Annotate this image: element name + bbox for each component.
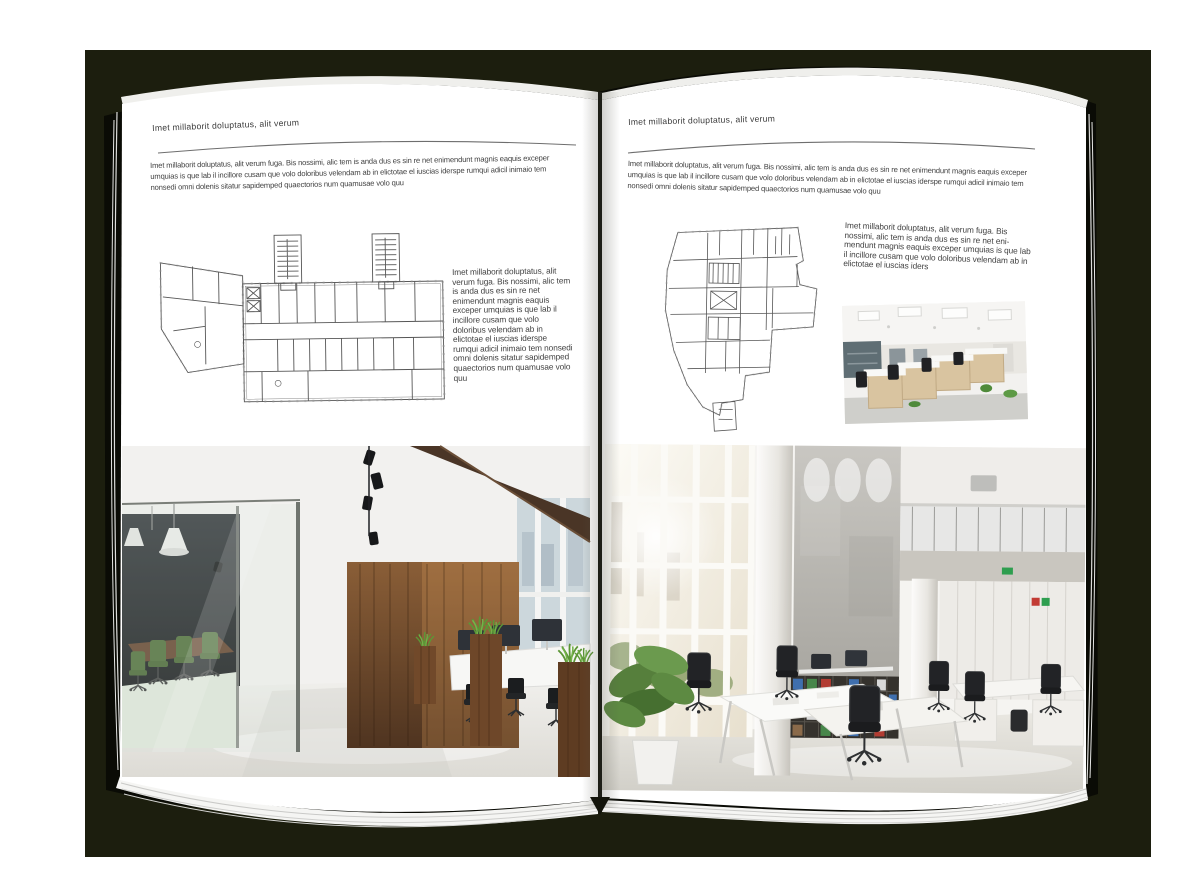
brochure-mockup: Imet millaborit doluptatus, alit verum I… bbox=[0, 0, 1200, 891]
small-office-photo bbox=[842, 301, 1028, 424]
first-aid-sign-icon bbox=[1032, 598, 1040, 606]
right-page-side-column: Imet millaborit doluptatus, alit verum f… bbox=[843, 221, 1033, 276]
left-page-side-column: Imet millaborit doluptatus, alit verum f… bbox=[452, 266, 574, 383]
right-office-photo bbox=[592, 444, 1086, 794]
exit-sign-icon bbox=[1002, 567, 1013, 574]
left-office-photo bbox=[122, 446, 593, 777]
book-artwork bbox=[0, 0, 1200, 891]
